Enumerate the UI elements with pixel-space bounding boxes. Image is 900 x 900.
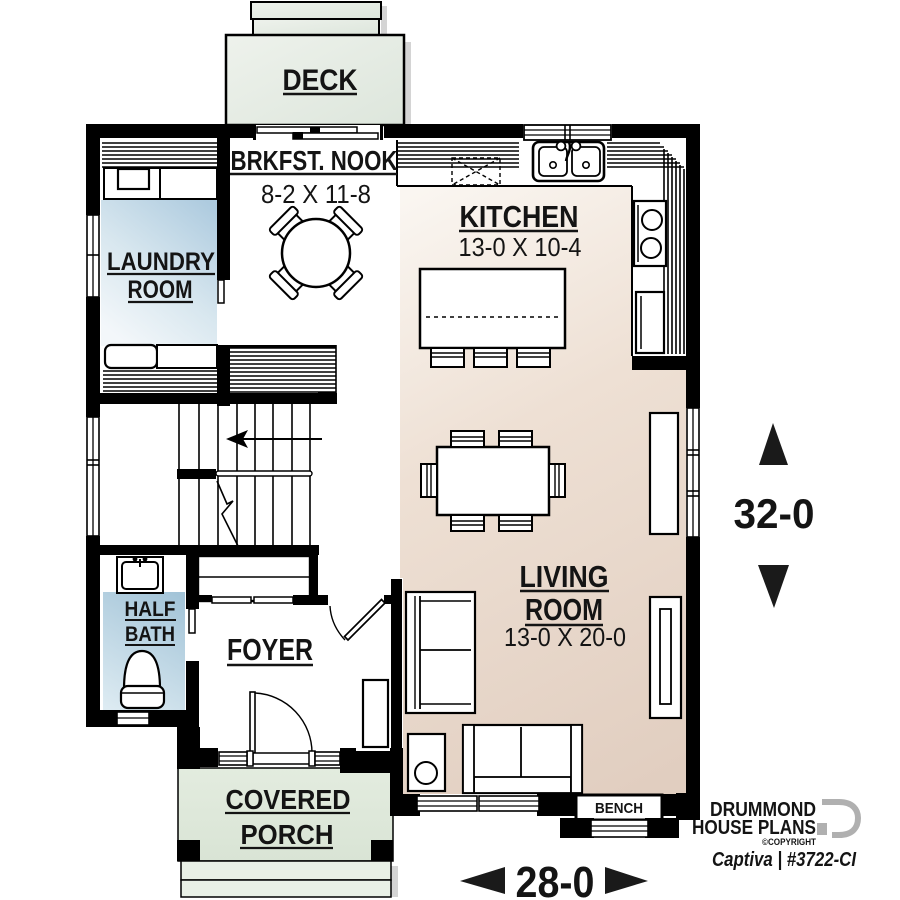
svg-text:13-0 X 10-4: 13-0 X 10-4 (459, 232, 582, 262)
svg-text:FOYER: FOYER (227, 632, 313, 667)
svg-text:LIVING: LIVING (520, 559, 609, 594)
svg-text:13-0 X 20-0: 13-0 X 20-0 (504, 622, 626, 652)
svg-text:KITCHEN: KITCHEN (460, 199, 579, 234)
svg-text:HOUSE PLANS: HOUSE PLANS (692, 817, 816, 839)
svg-text:LAUNDRY: LAUNDRY (107, 248, 215, 276)
svg-text:BATH: BATH (125, 623, 175, 646)
svg-text:BRKFST. NOOK: BRKFST. NOOK (231, 145, 398, 176)
svg-text:PORCH: PORCH (241, 819, 334, 850)
svg-text:DECK: DECK (283, 64, 358, 97)
svg-text:8-2 X 11-8: 8-2 X 11-8 (261, 179, 371, 209)
svg-text:©COPYRIGHT: ©COPYRIGHT (762, 837, 816, 847)
svg-text:28-0: 28-0 (516, 858, 595, 900)
svg-text:Captiva | #3722-CI: Captiva | #3722-CI (712, 849, 856, 871)
svg-text:ROOM: ROOM (128, 276, 193, 304)
svg-text:COVERED: COVERED (226, 784, 351, 815)
svg-text:32-0: 32-0 (734, 490, 815, 537)
svg-text:BENCH: BENCH (595, 800, 643, 817)
svg-text:HALF: HALF (125, 598, 176, 621)
